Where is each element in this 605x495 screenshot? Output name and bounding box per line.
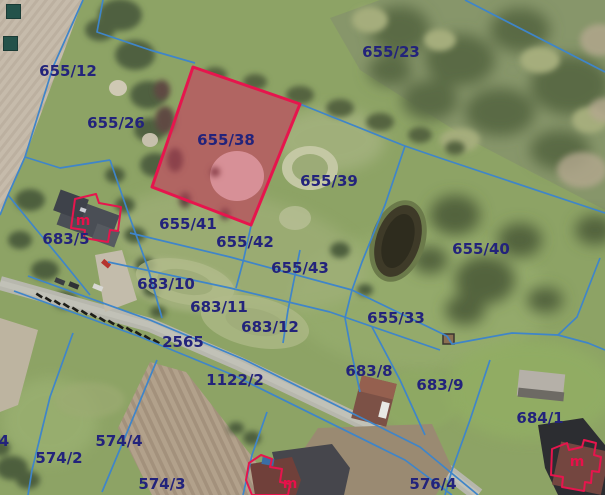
dark-square-marker — [6, 4, 21, 19]
terrain-layer — [0, 0, 605, 495]
dark-square-marker — [3, 36, 18, 51]
shed-684-1 — [517, 370, 565, 402]
map-viewport[interactable]: 655/12655/26655/23655/38655/39655/40655/… — [0, 0, 605, 495]
aerial-map-canvas[interactable] — [0, 0, 605, 495]
